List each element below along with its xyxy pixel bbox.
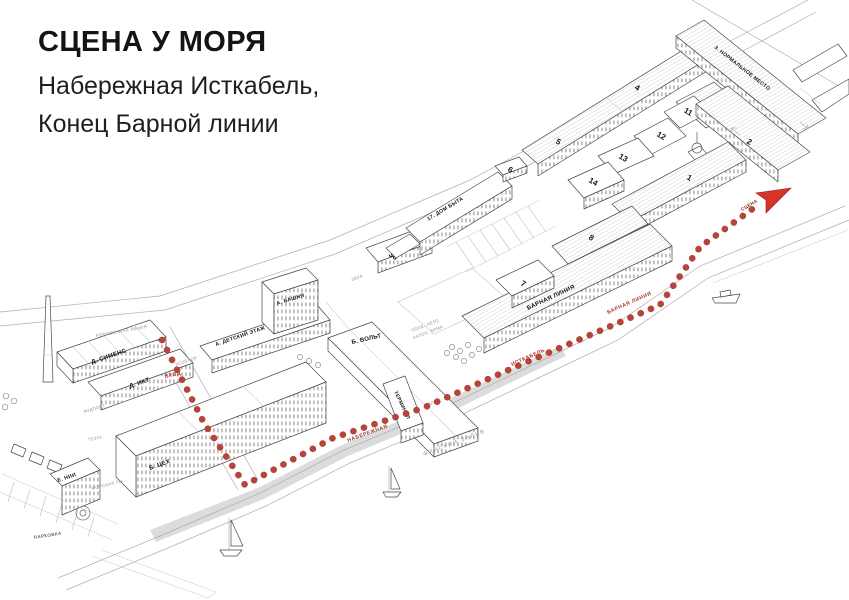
- page-title: СЦЕНА У МОРЯ: [38, 26, 319, 59]
- label-fudport: ФУДПОРТ: [83, 403, 106, 414]
- map-title-block: СЦЕНА У МОРЯ Набережная Исткабель, Конец…: [38, 26, 319, 143]
- address-line-2: Конец Барной линии: [38, 105, 319, 143]
- sailboat: [220, 518, 243, 556]
- label-tezga: ТЕЗГА: [87, 435, 102, 442]
- route-arrow: [756, 188, 791, 213]
- shoreline: [58, 206, 849, 590]
- address-line-1: Набережная Исткабель,: [38, 67, 319, 105]
- car: [11, 444, 26, 457]
- sailboat: [383, 466, 401, 497]
- motorboat: [712, 290, 740, 303]
- chimney: [43, 296, 53, 382]
- car: [29, 452, 44, 465]
- label-parkovka: ПАРКОВКА: [33, 531, 62, 540]
- label-zvuk: ЗВУК: [351, 273, 364, 282]
- building-dom-byta: 17. ДОМ БЫТА: [386, 172, 512, 258]
- screenshot-root: СЦЕНА У МОРЯ Набережная Исткабель, Конец…: [0, 0, 849, 600]
